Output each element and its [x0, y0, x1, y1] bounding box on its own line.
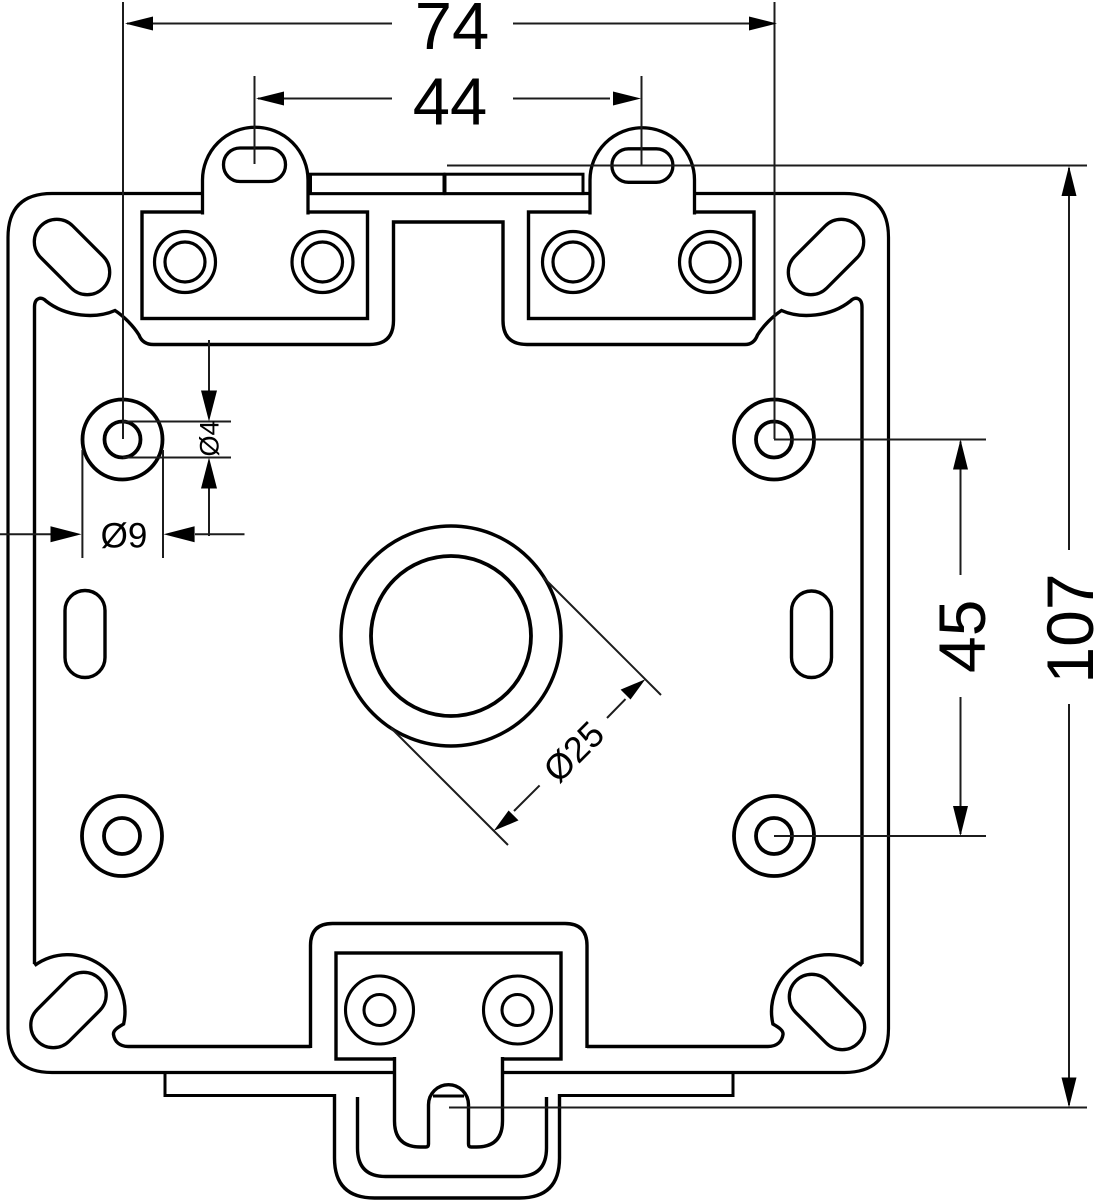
svg-text:74: 74 [415, 0, 490, 64]
svg-text:Ø9: Ø9 [101, 517, 148, 556]
svg-text:Ø4: Ø4 [195, 420, 225, 456]
svg-text:44: 44 [413, 65, 488, 140]
svg-text:107: 107 [1033, 573, 1095, 683]
svg-text:45: 45 [925, 600, 999, 673]
